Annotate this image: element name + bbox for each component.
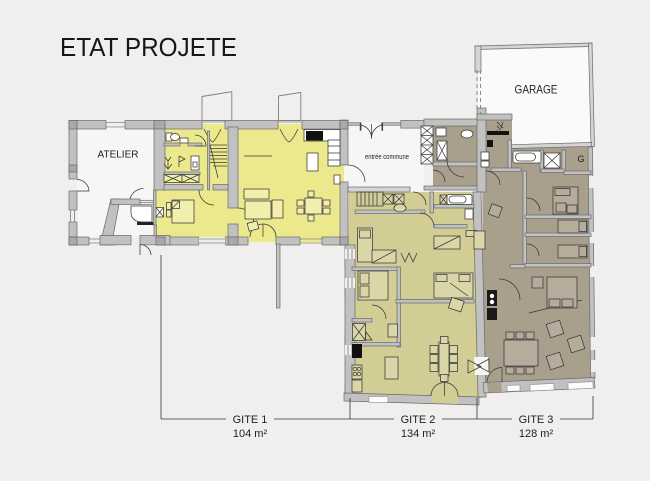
svg-text:104 m²: 104 m² bbox=[233, 428, 268, 440]
svg-text:GARAGE: GARAGE bbox=[515, 83, 558, 97]
svg-text:entrée commune: entrée commune bbox=[365, 152, 409, 161]
svg-text:134 m²: 134 m² bbox=[401, 428, 436, 440]
svg-text:GITE 2: GITE 2 bbox=[401, 414, 436, 426]
svg-text:ETAT PROJETE: ETAT PROJETE bbox=[60, 32, 237, 62]
svg-text:ATELIER: ATELIER bbox=[98, 150, 139, 161]
svg-text:GITE 3: GITE 3 bbox=[519, 414, 554, 426]
svg-text:128 m²: 128 m² bbox=[519, 428, 554, 440]
svg-text:GITE 1: GITE 1 bbox=[233, 414, 268, 426]
svg-text:G: G bbox=[577, 154, 584, 164]
